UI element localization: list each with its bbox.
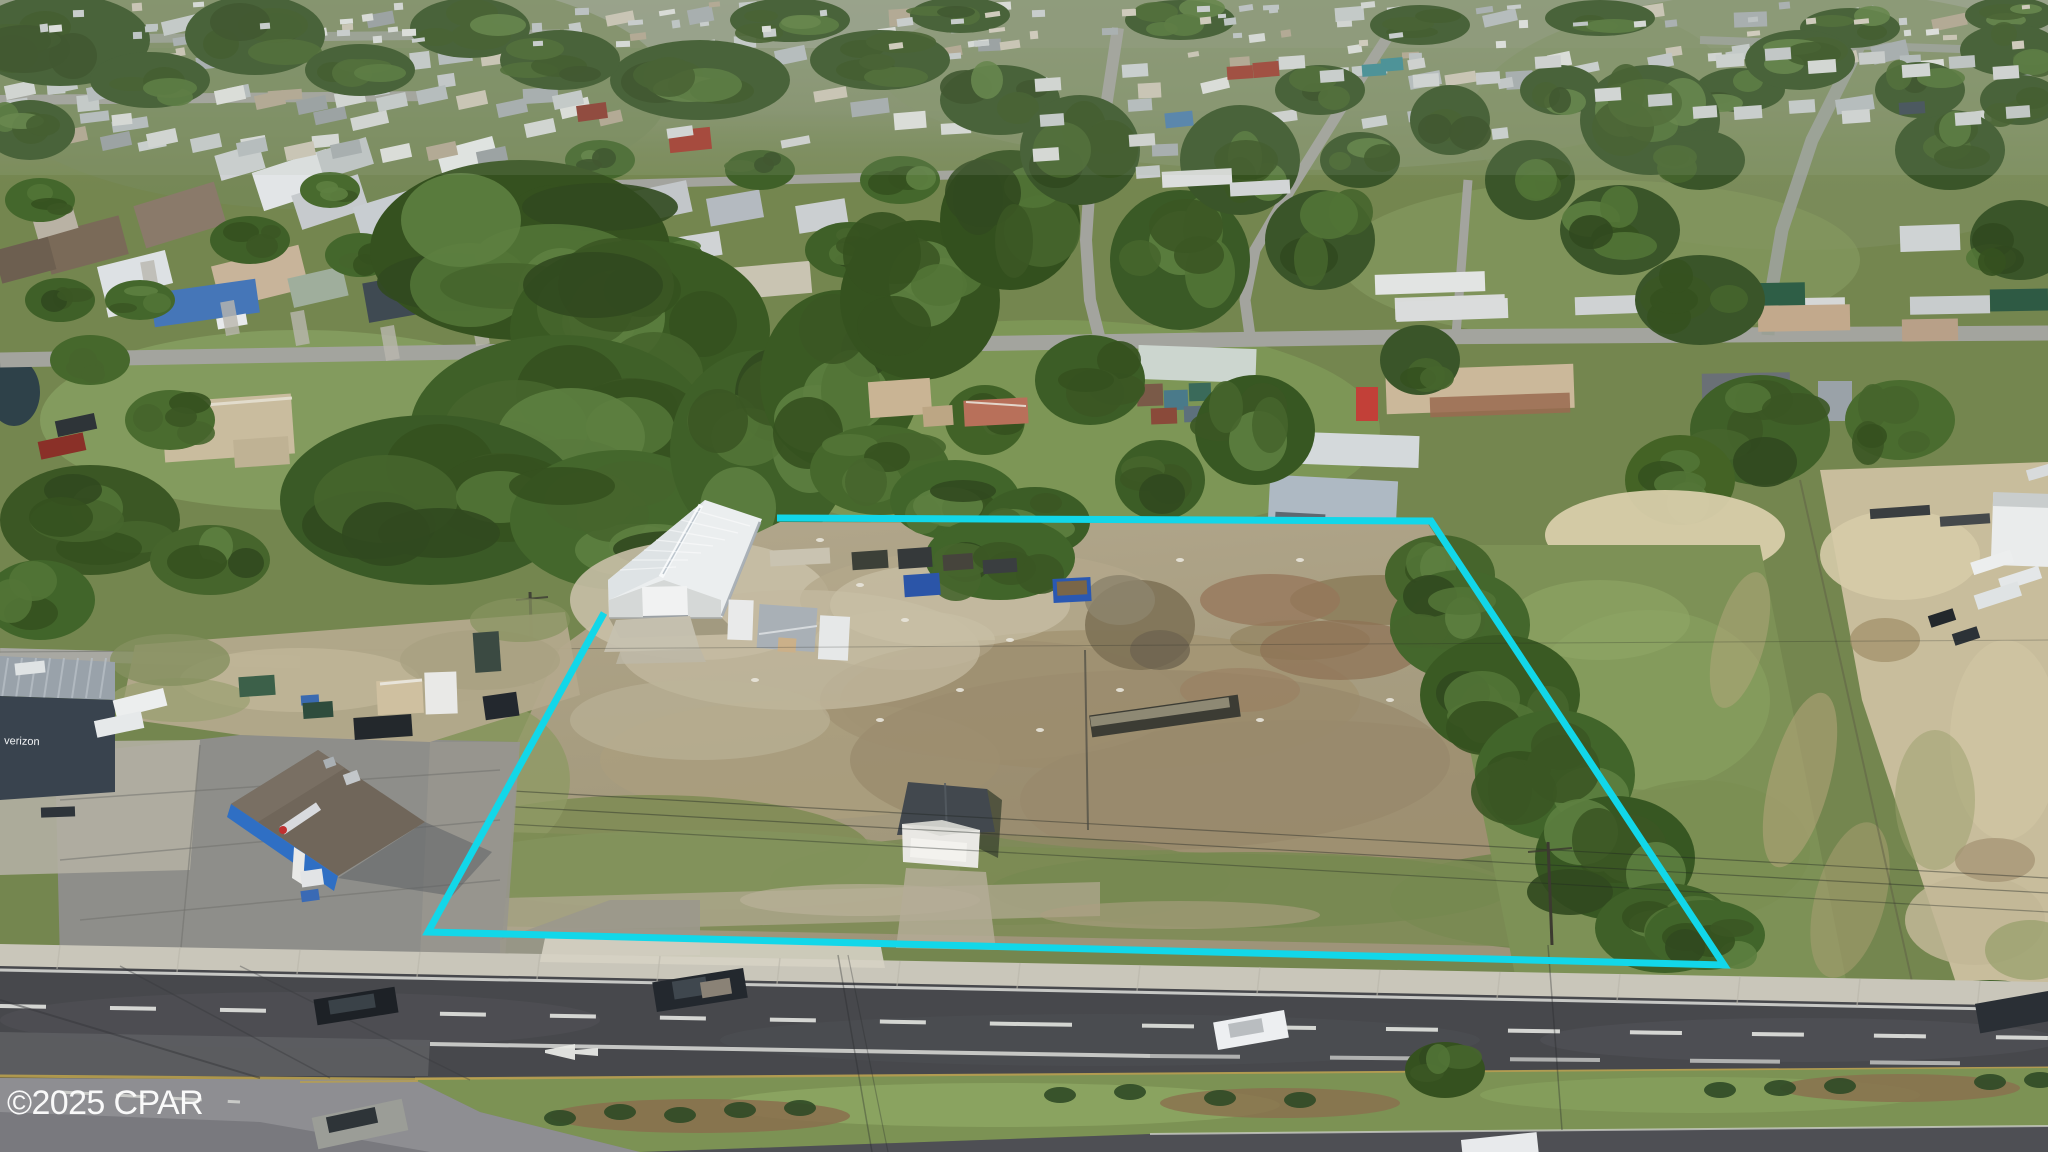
svg-text:©2025 CPAR: ©2025 CPAR xyxy=(7,1084,203,1122)
svg-text:verizon: verizon xyxy=(4,735,40,748)
